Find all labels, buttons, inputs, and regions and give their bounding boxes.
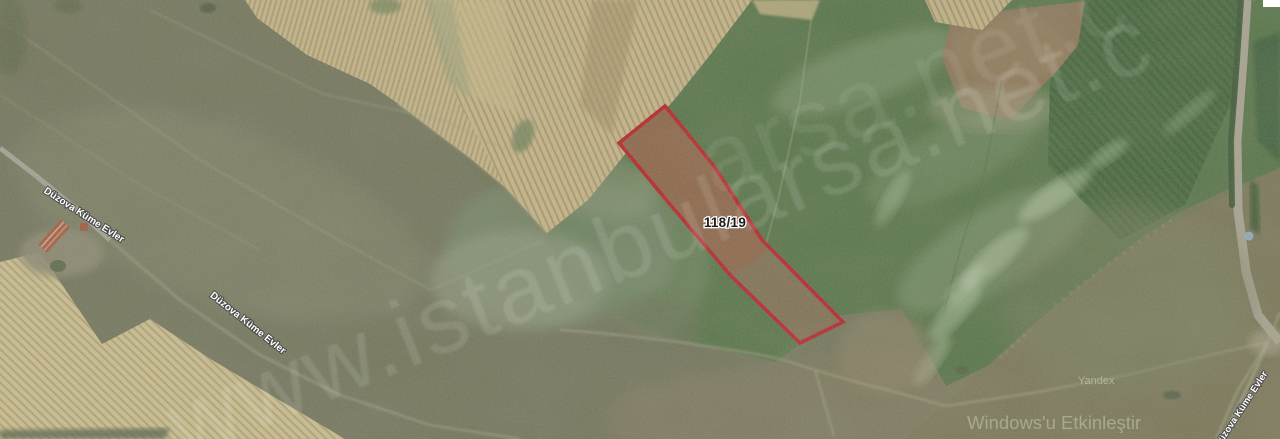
svg-text:118/19: 118/19 xyxy=(704,215,746,230)
svg-text:Windows'u Etkinleştir: Windows'u Etkinleştir xyxy=(967,412,1141,433)
svg-text:Yandex: Yandex xyxy=(1078,375,1115,387)
